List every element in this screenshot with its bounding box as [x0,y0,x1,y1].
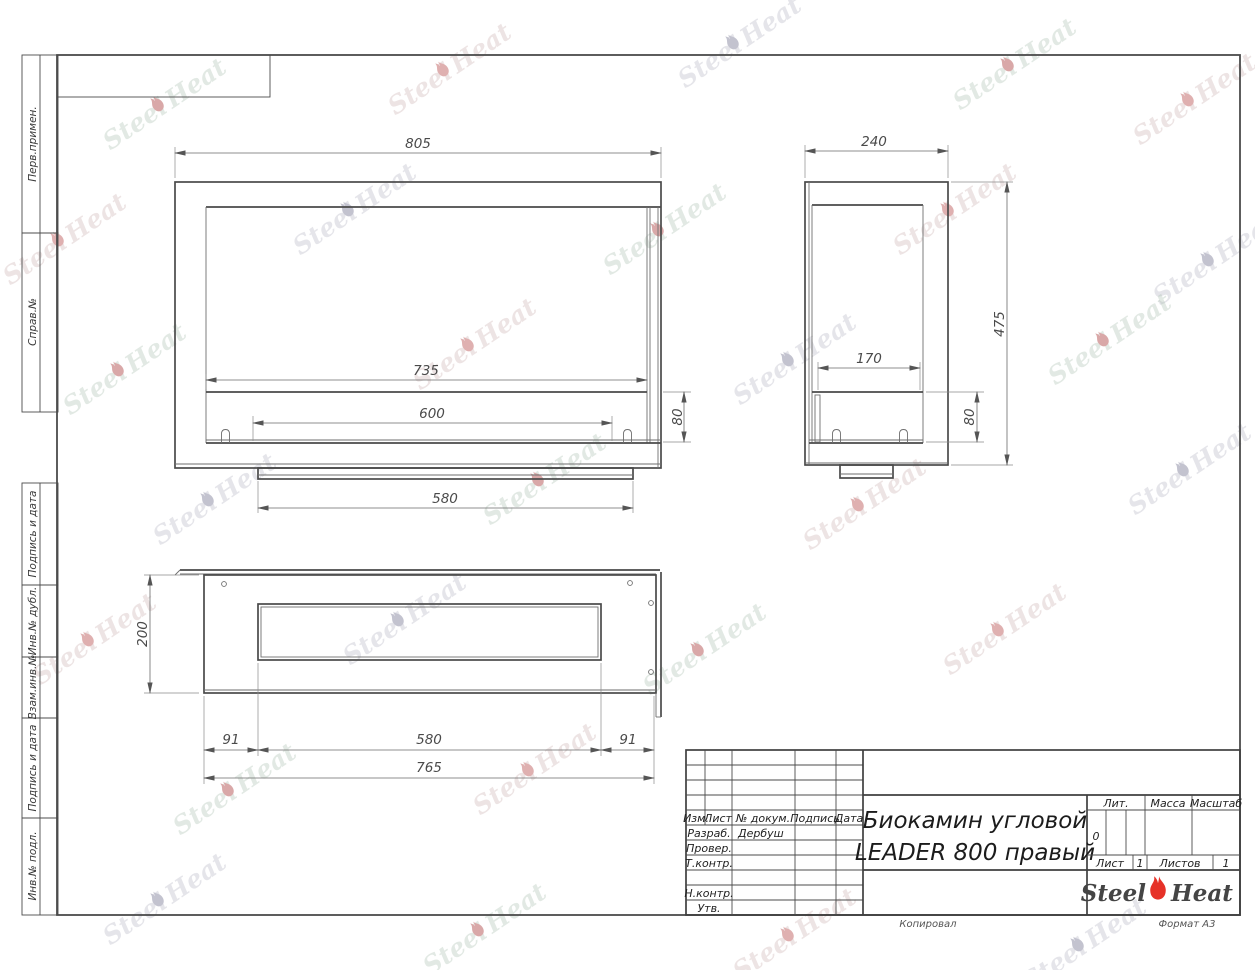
dim-side-height: 475 [992,311,1008,337]
svg-text:Steel: Steel [417,917,492,970]
mass-label: Масса [1150,797,1185,810]
watermark: SteelHeat [287,157,422,261]
developer-name: Дербуш [737,827,784,840]
flame-icon [1150,876,1166,899]
margin-label-podpis-data-2: Подпись и дата [27,725,39,812]
sheets-value: 1 [1223,857,1230,870]
mount-hole [649,601,654,606]
svg-text:Heat: Heat [999,577,1072,639]
margin-label-podpis-data-1: Подпись и дата [27,491,39,578]
svg-text:Heat: Heat [209,447,282,509]
margin-label-inv-podl: Инв.№ подл. [27,831,39,900]
watermark: SteelHeat [467,717,602,821]
svg-text:Heat: Heat [734,0,807,52]
watermark: SteelHeat [672,0,807,94]
svg-text:Heat: Heat [119,317,192,379]
watermark: SteelHeat [1127,47,1255,151]
watermark: SteelHeat [637,597,772,701]
watermark: SteelHeat [597,177,732,281]
svg-text:Heat: Heat [444,17,517,79]
svg-text:Heat: Heat [229,737,302,799]
row-checked-label: Провер. [686,842,732,855]
svg-text:Heat: Heat [529,717,602,779]
svg-text:Heat: Heat [1184,417,1255,479]
svg-text:Heat: Heat [479,877,552,939]
lit-value: 0 [1093,830,1100,843]
logo-text-steel: Steel [1081,880,1147,907]
dim-plan-depth: 200 [135,621,151,647]
side-glass-edge [815,395,820,442]
scale-label: Масштаб [1190,797,1242,810]
margin-label-perv-primen: Перв.примен. [27,106,39,181]
watermark: SteelHeat [947,12,1082,116]
svg-text:Steel: Steel [1017,932,1092,970]
watermark: SteelHeat [797,452,932,556]
watermark: SteelHeat [147,447,282,551]
row-ncontrol-label: Н.контр. [684,887,733,900]
left-margin-columns: Перв.примен. Справ.№ Подпись и дата Инв.… [22,55,58,915]
svg-text:Heat: Heat [1009,12,1082,74]
dim-side-opening: 170 [856,351,882,367]
svg-text:Heat: Heat [659,177,732,239]
burner-pin-right [624,430,632,444]
watermark: SteelHeat [727,307,862,411]
technical-drawing: SteelHeat SteelHeat SteelHeat SteelHeat … [0,0,1255,970]
dim-plan-offset-right: 91 [619,732,636,748]
sheet-label: Лист [1095,857,1124,870]
drawing-sheet: SteelHeat SteelHeat SteelHeat SteelHeat … [0,0,1255,970]
dim-front-width: 805 [405,136,431,152]
dim-plan-offset-left: 91 [222,732,239,748]
col-list-label: Лист [703,812,732,825]
watermark: SteelHeat [887,157,1022,261]
dim-front-foot: 580 [432,491,458,507]
format-label: Формат A3 [1159,919,1216,930]
row-tcontrol-label: Т.контр. [685,857,733,870]
svg-text:Heat: Heat [159,52,232,114]
svg-text:Heat: Heat [789,882,862,944]
dim-front-burner: 600 [419,406,445,422]
watermark: SteelHeat [1122,417,1255,521]
watermark: SteelHeat [0,187,132,291]
dim-plan-total: 765 [416,760,442,776]
watermark: SteelHeat [382,17,517,121]
row-developed-label: Разраб. [687,827,730,840]
sheet-value: 1 [1137,857,1144,870]
svg-text:Heat: Heat [59,187,132,249]
title-block: Изм. Лист № докум. Подпись Дата Разраб. … [683,750,1242,915]
col-sign-label: Подпись [790,812,839,825]
svg-text:Heat: Heat [1189,47,1255,109]
lit-label: Лит. [1102,797,1128,810]
steel-heat-logo: Steel Heat [1081,876,1234,907]
watermark: SteelHeat [417,877,552,970]
burner-pin-left [833,430,841,444]
margin-label-vzam-inv: Взам.инв.№ [27,655,39,720]
svg-text:Heat: Heat [1104,287,1177,349]
dim-front-opening: 735 [413,363,439,379]
svg-text:Heat: Heat [949,157,1022,219]
product-name-line1: Биокамин угловой [863,808,1088,834]
dim-side-burner-height: 80 [962,408,978,425]
svg-text:Heat: Heat [1209,207,1255,269]
watermark: SteelHeat [57,317,192,421]
sheets-label: Листов [1158,857,1200,870]
svg-text:Heat: Heat [159,847,232,909]
svg-text:Heat: Heat [789,307,862,369]
svg-text:Heat: Heat [399,567,472,629]
watermark: SteelHeat [937,577,1072,681]
svg-text:Heat: Heat [699,597,772,659]
dim-side-depth: 240 [861,134,887,150]
margin-label-sprav-no: Справ.№ [27,298,39,346]
watermark: SteelHeat [97,52,232,156]
watermark: SteelHeat [167,737,302,841]
col-date-label: Дата [834,812,864,825]
product-name-line2: LEADER 800 правый [855,840,1095,866]
dim-front-burner-height: 80 [670,408,686,425]
margin-label-inv-dubl: Инв.№ дубл. [27,587,39,656]
svg-text:Heat: Heat [469,292,542,354]
watermark: SteelHeat [1042,287,1177,391]
burner-pin-left [222,430,230,444]
dim-plan-slot: 580 [416,732,442,748]
svg-text:Steel: Steel [727,922,802,970]
mount-hole [222,582,227,587]
svg-text:Heat: Heat [349,157,422,219]
burner-pin-right [900,430,908,444]
logo-text-heat: Heat [1170,880,1233,907]
copied-label: Копировал [899,919,957,930]
col-doc-label: № докум. [735,812,790,825]
svg-text:Heat: Heat [539,427,612,489]
mount-hole [628,581,633,586]
row-approved-label: Утв. [697,902,720,915]
watermark: SteelHeat [97,847,232,951]
watermark: SteelHeat [337,567,472,671]
svg-text:Heat: Heat [859,452,932,514]
